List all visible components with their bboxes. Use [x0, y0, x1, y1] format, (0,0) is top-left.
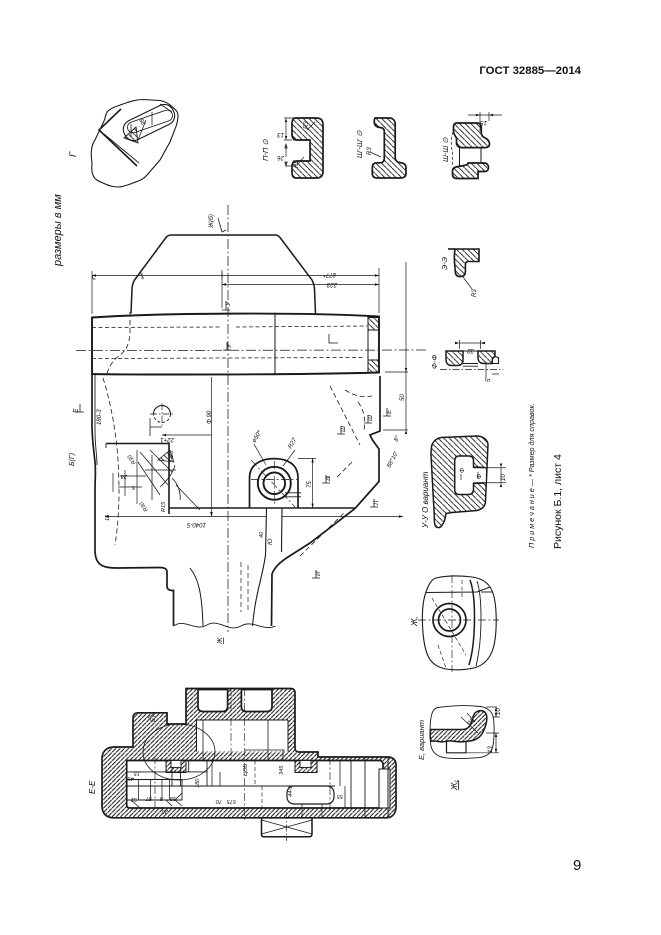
svg-text:ø50*: ø50*	[251, 429, 264, 444]
svg-text:R25: R25	[169, 450, 175, 461]
svg-text:38: 38	[169, 795, 176, 801]
svg-text:13: 13	[487, 746, 494, 753]
svg-text:20: 20	[161, 808, 169, 814]
svg-text:10: 10	[500, 474, 507, 481]
svg-text:26: 26	[277, 154, 285, 161]
svg-text:55: 55	[336, 793, 343, 799]
svg-text:13: 13	[277, 131, 284, 138]
svg-text:Ю: Ю	[267, 538, 274, 545]
svg-text:Ф: Ф	[476, 474, 483, 479]
svg-text:57: 57	[145, 795, 152, 801]
svg-text:R3: R3	[366, 147, 373, 155]
svg-text:88°10': 88°10'	[386, 450, 401, 469]
svg-text:Е, вариант: Е, вариант	[417, 720, 426, 760]
svg-text:15: 15	[105, 514, 111, 521]
svg-text:Ф: Ф	[459, 468, 466, 473]
svg-text:размеры в мм: размеры в мм	[52, 194, 64, 267]
svg-text:З: З	[325, 476, 332, 480]
svg-text:15: 15	[133, 770, 140, 776]
svg-text:345: 345	[279, 765, 285, 775]
svg-text:1040-5: 1040-5	[186, 521, 206, 528]
svg-text:R15: R15	[161, 501, 167, 512]
svg-text:Рисунок Б.1, лист 4: Рисунок Б.1, лист 4	[552, 454, 564, 549]
svg-text:223: 223	[326, 281, 338, 288]
svg-text:51: 51	[131, 796, 137, 802]
svg-text:R27: R27	[287, 436, 299, 450]
svg-text:Е-Е: Е-Е	[88, 780, 97, 794]
svg-text:45: 45	[127, 775, 134, 781]
svg-text:Ж,: Ж,	[410, 616, 419, 627]
svg-text:Ф 90: Ф 90	[206, 410, 213, 424]
svg-text:Г: Г	[68, 151, 79, 157]
svg-text:28: 28	[120, 473, 128, 479]
svg-text:Ж(б): Ж(б)	[207, 214, 215, 229]
svg-text:Е₁: Е₁	[150, 716, 157, 722]
svg-text:R30: R30	[138, 500, 149, 513]
svg-text:9: 9	[573, 857, 581, 874]
svg-text:32: 32	[467, 347, 474, 354]
svg-text:40: 40	[259, 531, 265, 538]
svg-text:R3: R3	[471, 289, 478, 297]
svg-text:15: 15	[480, 119, 487, 126]
svg-text:35: 35	[138, 117, 148, 127]
svg-text:ГОСТ 32885—2014: ГОСТ 32885—2014	[479, 65, 581, 77]
svg-text:50: 50	[399, 394, 406, 401]
svg-text:Ф-Ф: Ф-Ф	[430, 355, 439, 369]
svg-text:П р и м е ч а н и е — * Размер: П р и м е ч а н и е — * Размер для справ…	[527, 403, 536, 548]
svg-text:R30: R30	[126, 453, 137, 466]
svg-text:Э-Э: Э-Э	[440, 257, 449, 270]
svg-text:180: 180	[195, 778, 201, 788]
svg-text:44-3: 44-3	[288, 785, 294, 797]
svg-text:10: 10	[495, 708, 502, 715]
svg-text:75: 75	[306, 481, 313, 488]
svg-text:R5: R5	[293, 160, 300, 168]
svg-text:Ш'-Ш' ⊙: Ш'-Ш' ⊙	[355, 130, 364, 158]
svg-text:8°: 8°	[393, 434, 402, 443]
svg-text:ЦОБ: ЦОБ	[243, 764, 249, 776]
svg-text:Ш-Ш ⊙: Ш-Ш ⊙	[441, 137, 450, 162]
svg-text:У-У О вариант: У-У О вариант	[421, 471, 430, 529]
svg-text:22+1: 22+1	[160, 436, 175, 443]
svg-text:Ж: Ж	[217, 637, 224, 645]
svg-text:575: 575	[226, 798, 236, 804]
svg-text:П-П ⊙: П-П ⊙	[261, 139, 270, 161]
svg-text:877*: 877*	[323, 271, 336, 278]
svg-text:180-3: 180-3	[96, 409, 103, 425]
svg-text:Ж₁: Ж₁	[450, 780, 459, 791]
svg-text:Б(Г): Б(Г)	[69, 453, 76, 466]
svg-text:70: 70	[215, 798, 222, 804]
svg-text:R3: R3	[303, 121, 310, 129]
